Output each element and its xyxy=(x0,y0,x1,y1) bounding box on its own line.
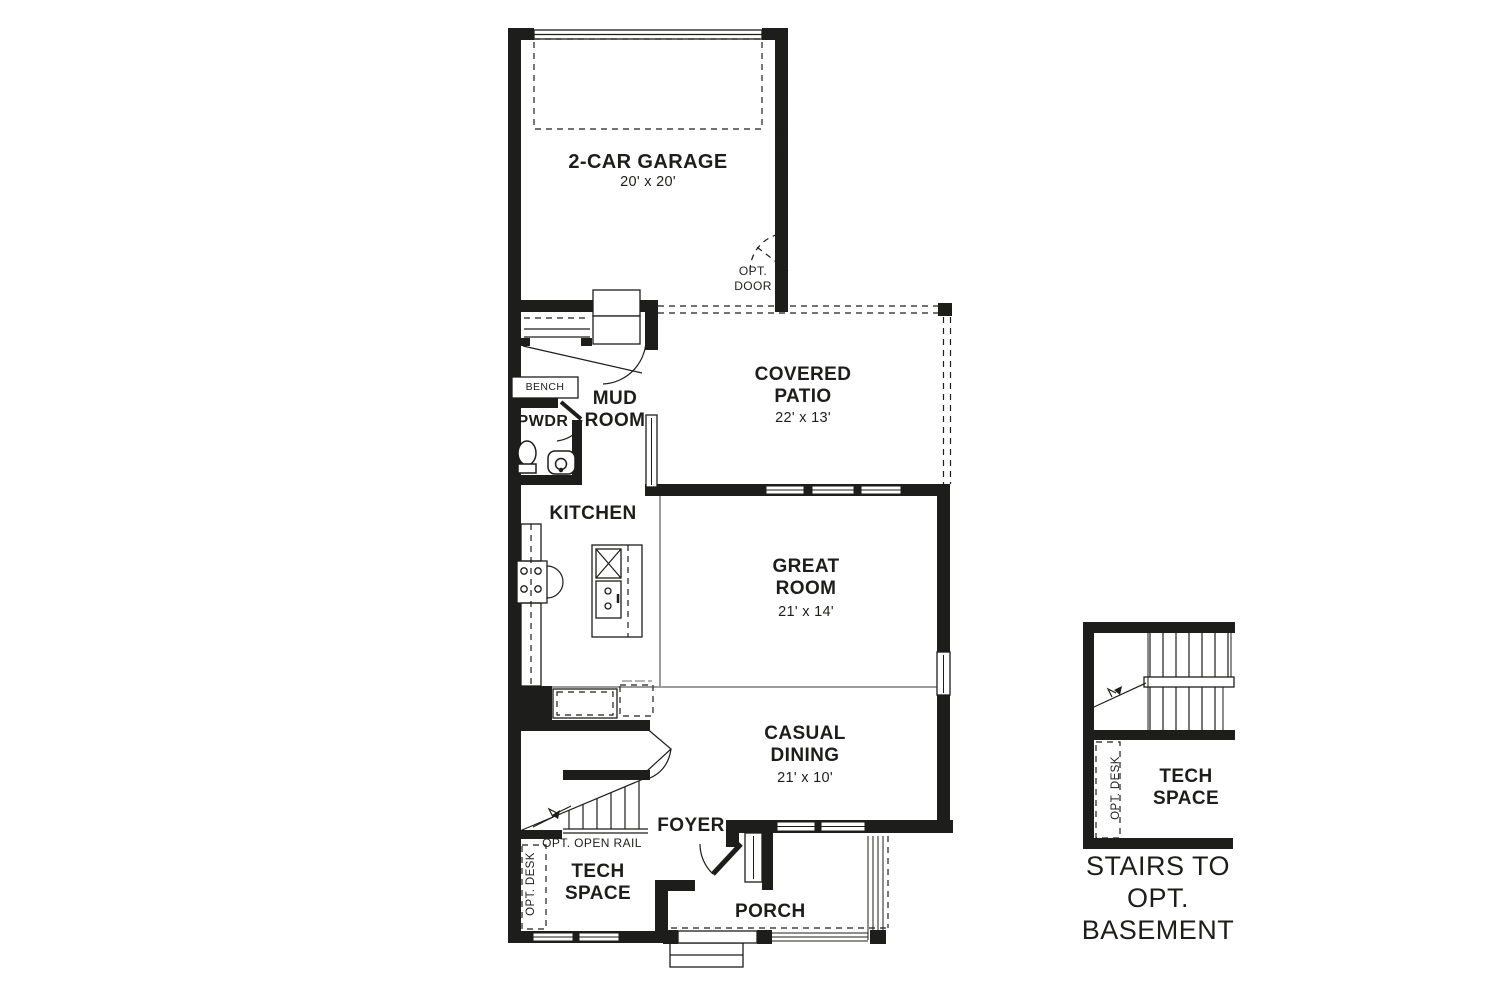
stairs-rail xyxy=(563,829,648,833)
covered-patio-dims: 22' x 13' xyxy=(743,411,863,427)
casual-dining-dims: 21' x 10' xyxy=(750,771,860,787)
detail-stairs-lower-treads xyxy=(1150,687,1215,730)
toilet-tank xyxy=(518,464,536,473)
porch-railing-right xyxy=(868,836,883,940)
pwdr-label: PWDR xyxy=(514,413,572,432)
stair-door-leaf xyxy=(645,727,671,771)
toilet-icon xyxy=(518,441,536,465)
sink-drain xyxy=(560,469,563,472)
detail-caption: STAIRS TO OPT. BASEMENT xyxy=(1058,851,1258,947)
fridge-outline xyxy=(620,685,653,716)
great-room-dims: 21' x 14' xyxy=(761,605,851,621)
door-leaves xyxy=(552,402,1122,874)
covered-patio-label: COVERED PATIO xyxy=(743,364,863,409)
foyer-label: FOYER xyxy=(656,815,726,837)
patio-roof-top xyxy=(658,306,950,313)
pwdr-fixtures xyxy=(518,441,575,474)
patio-roof-right xyxy=(944,306,951,484)
garage-door-track xyxy=(534,39,762,129)
garage-options-note: GARAGE OPTIONS AVAILABLE xyxy=(775,67,791,272)
porch-edge xyxy=(678,931,757,943)
stair-door-swing xyxy=(650,749,671,778)
stairs-treads xyxy=(569,781,639,829)
range-handle xyxy=(547,566,563,598)
garage-entry-door-leaf xyxy=(523,346,642,373)
detail-walls xyxy=(1083,622,1235,849)
detail-opt-desk-note: OPT. DESK xyxy=(1109,754,1122,822)
detail-stairs-arrowhead xyxy=(1114,686,1122,695)
detail-stair-rail xyxy=(1144,677,1234,687)
pantry-closet xyxy=(553,689,617,718)
mud-room-label: MUD ROOM xyxy=(580,388,650,433)
front-door-swing xyxy=(700,844,713,874)
opt-door-note: OPT. DOOR xyxy=(726,264,780,294)
great-room-label: GREAT ROOM xyxy=(761,556,851,601)
kitchen-label: KITCHEN xyxy=(548,503,638,525)
stairs-arrow-line xyxy=(533,806,571,827)
opt-open-rail-note: OPT. OPEN RAIL xyxy=(517,836,667,851)
garage-label: 2-CAR GARAGE xyxy=(568,151,728,175)
casual-dining-label: CASUAL DINING xyxy=(750,723,860,768)
garage-step-upper xyxy=(593,290,640,316)
floor-plan-canvas: 2-CAR GARAGE 20' x 20' GARAGE OPTIONS AV… xyxy=(0,0,1500,1000)
detail-tech-space-label: TECH SPACE xyxy=(1141,766,1231,811)
front-door-leaf xyxy=(713,844,741,874)
bench-note: BENCH xyxy=(512,381,578,394)
detail-stairs-upper-treads xyxy=(1150,633,1228,677)
stairs-diagonal xyxy=(515,777,648,833)
range-icon xyxy=(517,561,547,603)
porch-label: PORCH xyxy=(735,901,805,923)
opt-desk-note: OPT. DESK xyxy=(524,843,538,925)
floor-plan-drawing xyxy=(0,0,1500,1000)
closet-shelf xyxy=(524,329,590,337)
tech-space-label: TECH SPACE xyxy=(553,861,643,906)
garage-step-lower xyxy=(593,316,640,344)
porch-railing-bottom xyxy=(770,933,868,941)
garage-dims: 20' x 20' xyxy=(568,175,728,191)
